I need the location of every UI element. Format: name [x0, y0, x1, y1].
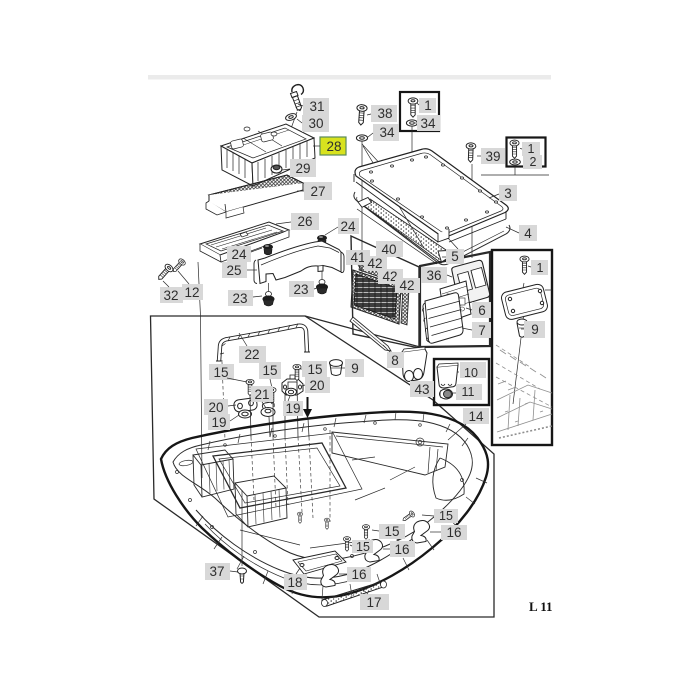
svg-text:11: 11 — [462, 385, 475, 399]
svg-text:36: 36 — [426, 268, 441, 283]
svg-text:9: 9 — [351, 361, 359, 376]
svg-text:34: 34 — [420, 116, 436, 131]
svg-text:17: 17 — [366, 595, 381, 610]
svg-text:15: 15 — [262, 363, 277, 378]
svg-text:8: 8 — [391, 353, 399, 368]
svg-text:37: 37 — [209, 564, 224, 579]
svg-text:39: 39 — [485, 149, 500, 164]
svg-text:16: 16 — [394, 542, 409, 557]
svg-text:6: 6 — [478, 303, 486, 318]
svg-text:41: 41 — [350, 250, 365, 265]
svg-text:15: 15 — [213, 365, 228, 380]
svg-text:28: 28 — [326, 139, 341, 154]
svg-text:7: 7 — [478, 323, 486, 338]
svg-text:40: 40 — [381, 242, 396, 257]
svg-text:15: 15 — [307, 362, 322, 377]
svg-text:1: 1 — [528, 142, 535, 156]
svg-text:43: 43 — [414, 382, 429, 397]
svg-text:18: 18 — [287, 575, 302, 590]
svg-text:1: 1 — [537, 261, 544, 275]
svg-text:29: 29 — [295, 161, 310, 176]
svg-text:25: 25 — [226, 263, 241, 278]
svg-text:32: 32 — [163, 288, 178, 303]
svg-text:26: 26 — [297, 214, 312, 229]
svg-text:21: 21 — [254, 387, 269, 402]
svg-text:23: 23 — [293, 282, 308, 297]
svg-text:4: 4 — [524, 226, 532, 241]
svg-text:42: 42 — [367, 256, 382, 271]
svg-text:15: 15 — [384, 524, 399, 539]
svg-text:16: 16 — [446, 525, 461, 540]
svg-text:19: 19 — [211, 415, 226, 430]
svg-text:14: 14 — [468, 409, 484, 424]
svg-text:5: 5 — [451, 249, 459, 264]
svg-text:9: 9 — [531, 322, 539, 337]
svg-text:42: 42 — [399, 278, 414, 293]
svg-text:15: 15 — [356, 540, 370, 554]
svg-text:20: 20 — [309, 378, 324, 393]
svg-text:22: 22 — [244, 347, 259, 362]
svg-text:L 11: L 11 — [529, 599, 553, 614]
svg-text:31: 31 — [309, 99, 324, 114]
svg-text:27: 27 — [310, 184, 325, 199]
svg-text:10: 10 — [464, 366, 478, 380]
svg-text:30: 30 — [308, 116, 323, 131]
svg-text:24: 24 — [340, 219, 356, 234]
svg-text:15: 15 — [439, 509, 453, 523]
svg-text:1: 1 — [424, 98, 432, 113]
svg-text:16: 16 — [351, 567, 366, 582]
svg-text:19: 19 — [285, 401, 300, 416]
svg-text:12: 12 — [184, 285, 199, 300]
svg-text:23: 23 — [232, 291, 247, 306]
svg-text:38: 38 — [377, 106, 392, 121]
svg-text:34: 34 — [379, 125, 395, 140]
svg-text:2: 2 — [530, 155, 537, 169]
svg-text:3: 3 — [504, 186, 512, 201]
svg-text:24: 24 — [231, 247, 247, 262]
svg-text:20: 20 — [208, 400, 223, 415]
